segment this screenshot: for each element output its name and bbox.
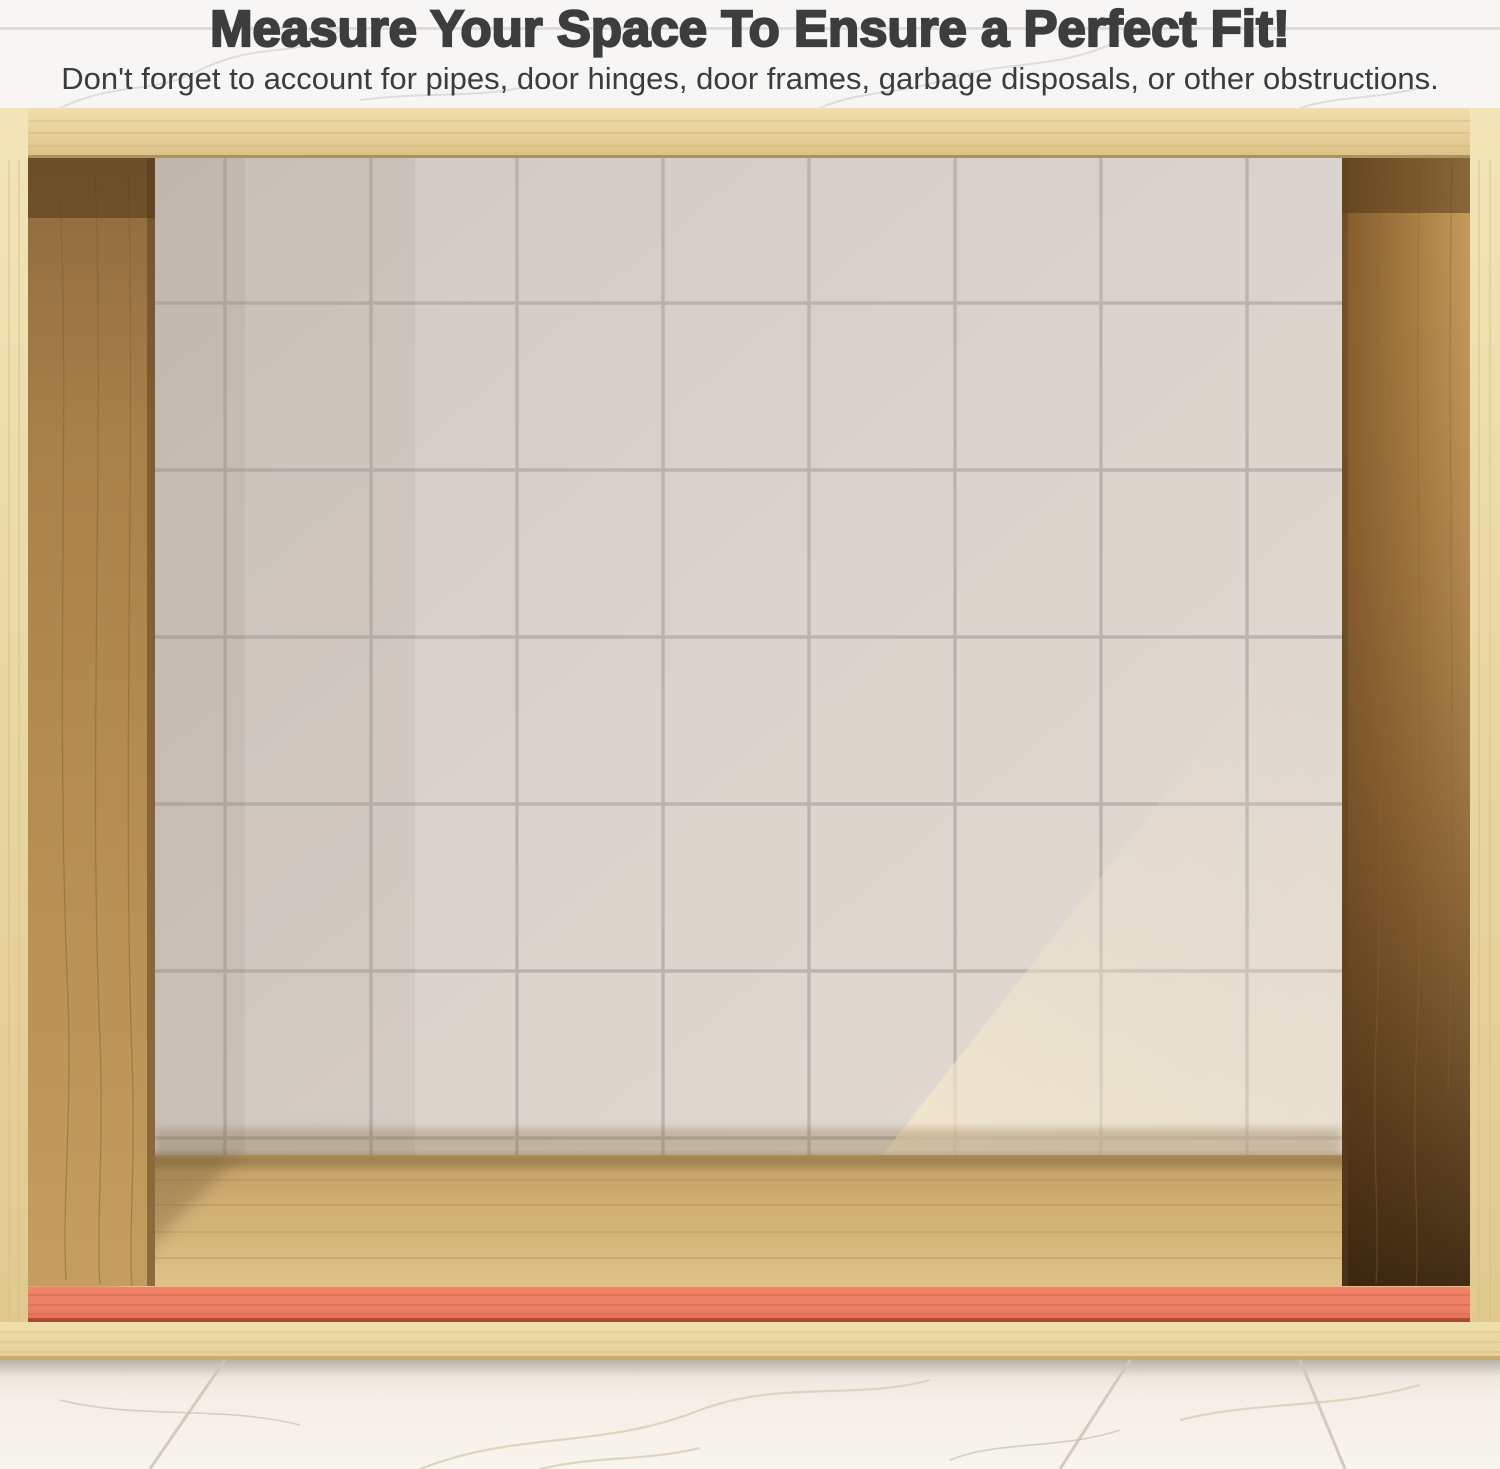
svg-text:Measure Your Space To Ensure a: Measure Your Space To Ensure a Perfect F… (210, 0, 1290, 57)
svg-text:Don't forget to account for pi: Don't forget to account for pipes, door … (61, 61, 1439, 96)
